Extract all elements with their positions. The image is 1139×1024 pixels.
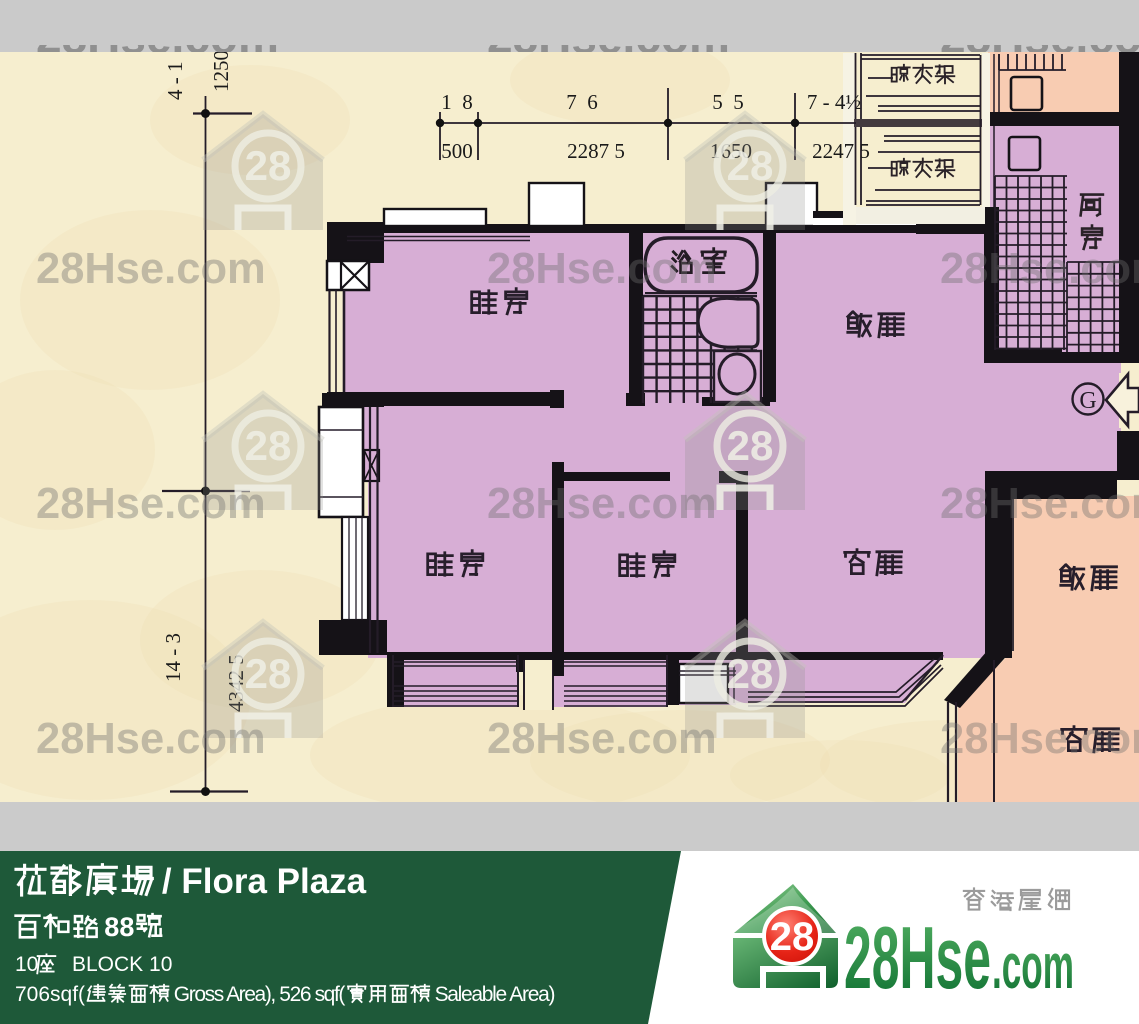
svg-text:28Hse: 28Hse — [844, 908, 991, 1007]
svg-text:1250: 1250 — [209, 50, 233, 92]
svg-text:28Hse.com: 28Hse.com — [487, 480, 717, 528]
svg-text:BLOCK 10: BLOCK 10 — [72, 953, 172, 976]
svg-text:10: 10 — [15, 953, 38, 976]
svg-text:28Hse.com: 28Hse.com — [487, 245, 717, 293]
svg-text:28Hse.com: 28Hse.com — [36, 480, 266, 528]
svg-text:G: G — [1079, 388, 1096, 414]
svg-text:28: 28 — [727, 422, 774, 469]
svg-text:500: 500 — [441, 139, 473, 163]
svg-text:28Hse.com: 28Hse.com — [36, 245, 266, 293]
svg-text:/ Flora Plaza: / Flora Plaza — [162, 862, 367, 901]
svg-text:28: 28 — [245, 142, 292, 189]
svg-text:.com: .com — [992, 930, 1074, 1002]
svg-text:5 5: 5 5 — [712, 90, 744, 114]
svg-text:88: 88 — [104, 912, 134, 942]
svg-text:706sqf(: 706sqf( — [15, 983, 85, 1006]
svg-text:7 6: 7 6 — [566, 90, 598, 114]
svg-text:28Hse.com: 28Hse.com — [940, 245, 1139, 293]
svg-text:2247 5: 2247 5 — [812, 139, 870, 163]
svg-text:28: 28 — [245, 650, 292, 697]
svg-text:14 - 3: 14 - 3 — [161, 633, 185, 682]
svg-text:Gross Area), 526 sqf(: Gross Area), 526 sqf( — [174, 983, 346, 1006]
svg-text:1 8: 1 8 — [441, 90, 473, 114]
svg-text:2287 5: 2287 5 — [567, 139, 625, 163]
svg-text:28Hse.com: 28Hse.com — [940, 715, 1139, 763]
svg-text:7 - 4½: 7 - 4½ — [807, 90, 861, 114]
svg-text:28: 28 — [245, 422, 292, 469]
svg-text:28Hse.com: 28Hse.com — [36, 715, 266, 763]
svg-text:28: 28 — [727, 142, 774, 189]
svg-text:Saleable Area): Saleable Area) — [435, 983, 555, 1006]
svg-text:28: 28 — [727, 650, 774, 697]
svg-text:4 - 1: 4 - 1 — [163, 62, 187, 101]
svg-text:28Hse.com: 28Hse.com — [940, 480, 1139, 528]
svg-text:28: 28 — [770, 915, 815, 959]
svg-text:28Hse.com: 28Hse.com — [487, 715, 717, 763]
